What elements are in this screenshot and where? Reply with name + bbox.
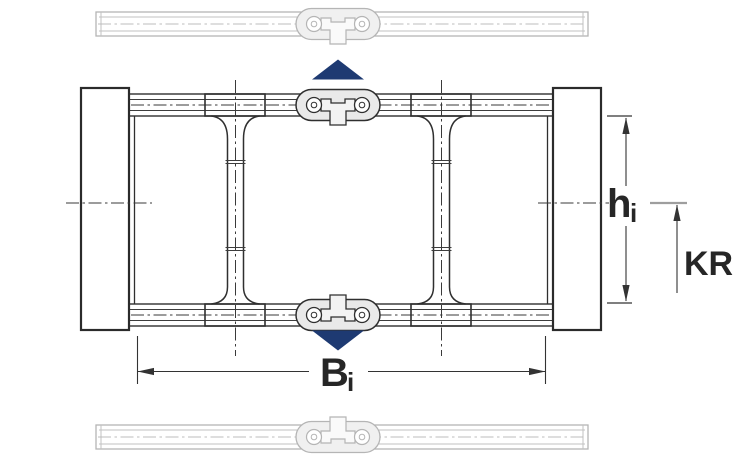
label-bi-symbol: B — [320, 351, 349, 395]
right-side-plate — [553, 88, 601, 330]
label-bi-subscript: i — [347, 367, 354, 397]
crossbar-lock — [296, 417, 380, 453]
cable-chain-cross-section-diagram: B i h i KR — [0, 0, 750, 473]
crossbar-lock — [296, 9, 380, 45]
label-hi-subscript: i — [630, 198, 637, 228]
label-hi-symbol: h — [607, 182, 631, 226]
dimension-bend-radius: KR — [650, 203, 733, 293]
up-arrow-icon — [312, 60, 364, 80]
crossbar-lock-bottom — [296, 295, 380, 331]
top-crossbar-profile — [96, 9, 588, 45]
dimension-inner-height: h i — [607, 116, 637, 303]
bottom-crossbar-profile — [96, 417, 588, 453]
left-side-plate — [81, 88, 129, 330]
crossbar-lock-top — [296, 90, 380, 126]
label-kr: KR — [684, 245, 733, 283]
down-arrow-icon — [312, 331, 364, 351]
chain-link-cross-section — [66, 80, 609, 356]
